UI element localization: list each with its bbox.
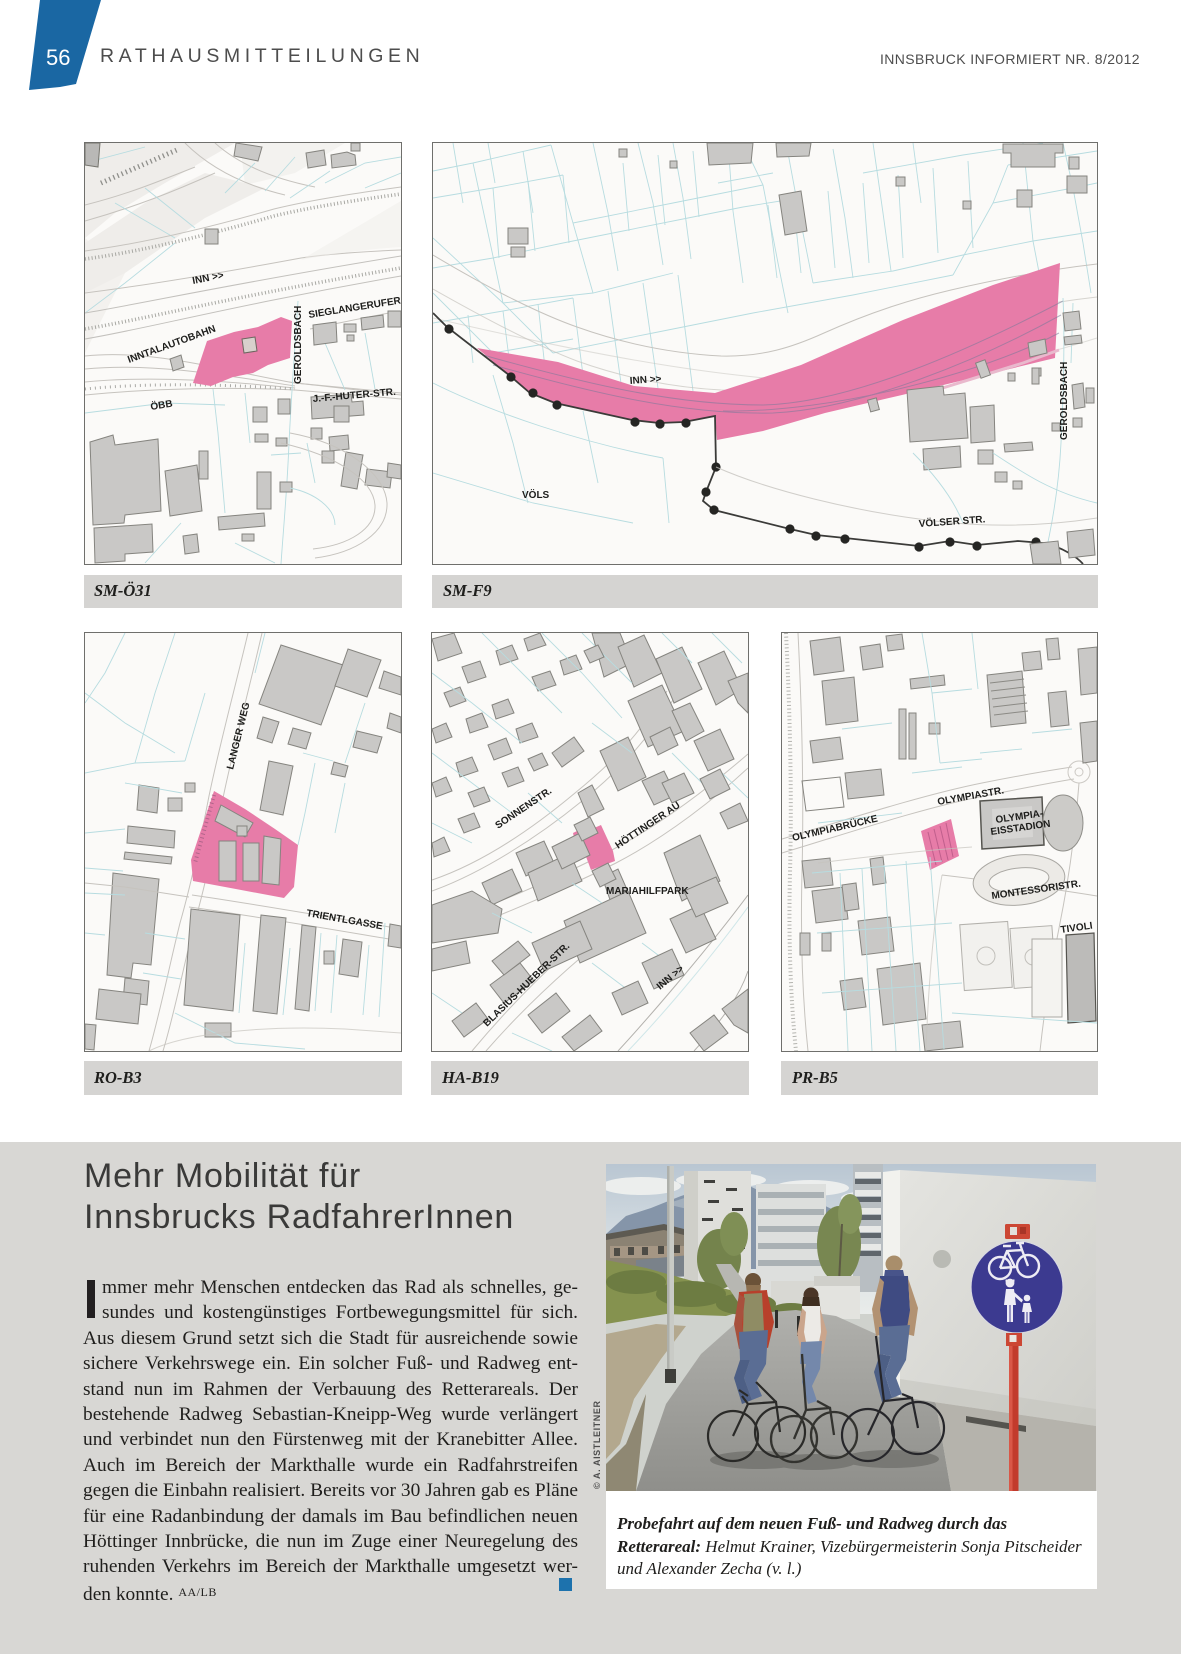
svg-text:INN >>: INN >> bbox=[191, 270, 224, 287]
svg-text:TRIENTLGASSE: TRIENTLGASSE bbox=[305, 908, 383, 932]
svg-text:ÖBB: ÖBB bbox=[149, 397, 173, 413]
svg-text:INN >>: INN >> bbox=[629, 374, 662, 387]
svg-text:VÖLS: VÖLS bbox=[522, 488, 550, 501]
svg-text:HÖTTINGER AU: HÖTTINGER AU bbox=[612, 798, 682, 851]
svg-text:SIEGLANGERUFER: SIEGLANGERUFER bbox=[308, 295, 401, 321]
svg-text:VÖLSER STR.: VÖLSER STR. bbox=[918, 512, 986, 530]
svg-text:GEROLDSBACH: GEROLDSBACH bbox=[1059, 362, 1070, 440]
svg-text:LANGER WEG: LANGER WEG bbox=[225, 701, 252, 771]
svg-text:MARIAHILFPARK: MARIAHILFPARK bbox=[606, 886, 689, 897]
svg-text:GEROLDSBACH: GEROLDSBACH bbox=[293, 306, 304, 384]
svg-text:56: 56 bbox=[46, 45, 70, 70]
